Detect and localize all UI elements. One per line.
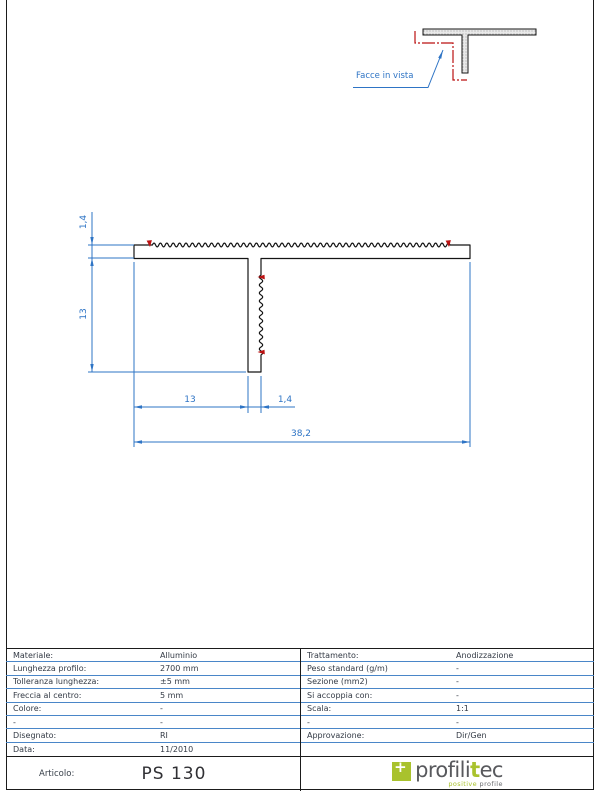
table-row: Trattamento:Anodizzazione <box>301 649 594 662</box>
article-row: Articolo: PS 130 + profilitec positive p… <box>6 756 594 791</box>
table-row: Peso standard (g/m)- <box>301 662 594 675</box>
row-value: RI <box>160 731 300 740</box>
dim-total-width: 38,2 <box>283 429 319 439</box>
logo-wordmark: profilitec <box>415 761 503 780</box>
table-row: -- <box>6 716 300 729</box>
logo-plus-icon: + <box>392 762 411 781</box>
visible-faces-label: Facce in vista <box>356 71 413 81</box>
article-cell: Articolo: PS 130 <box>6 757 300 791</box>
logo-cell: + profilitec positive profile <box>300 757 594 791</box>
spec-table: Materiale:Alluminio Lunghezza profilo:27… <box>6 648 594 790</box>
dim-stem-thickness: 1,4 <box>272 395 298 405</box>
profile-outline <box>134 243 470 372</box>
row-value: - <box>456 718 594 727</box>
row-value: Anodizzazione <box>456 651 594 660</box>
table-row: Si accoppia con:- <box>301 689 594 702</box>
row-label: - <box>6 718 160 727</box>
row-value: 5 mm <box>160 691 300 700</box>
article-number: PS 130 <box>109 764 239 784</box>
row-value: 2700 mm <box>160 664 300 673</box>
row-label: Data: <box>6 745 160 754</box>
detail-profile-section <box>423 29 536 73</box>
table-row: Materiale:Alluminio <box>6 649 300 662</box>
table-row: Scala:1:1 <box>301 703 594 716</box>
row-label: Disegnato: <box>6 731 160 740</box>
row-label: Tolleranza lunghezza: <box>6 677 160 686</box>
table-row: Approvazione:Dir/Gen <box>301 729 594 742</box>
row-label: Lunghezza profilo: <box>6 664 160 673</box>
row-label: Sezione (mm2) <box>301 677 456 686</box>
row-label: Materiale: <box>6 651 160 660</box>
row-value: - <box>160 718 300 727</box>
table-row: -- <box>301 716 594 729</box>
dim-stem-height: 13 <box>74 304 94 324</box>
row-label: Freccia al centro: <box>6 691 160 700</box>
table-row: Colore:- <box>6 703 300 716</box>
table-row: Data:11/2010 <box>6 743 300 756</box>
row-label: Si accoppia con: <box>301 691 456 700</box>
dim-flange-thickness: 1,4 <box>74 212 94 232</box>
dimension-lines <box>88 50 470 447</box>
table-row <box>301 743 594 756</box>
profilitec-logo: + profilitec positive profile <box>392 761 503 788</box>
table-row: Freccia al centro:5 mm <box>6 689 300 702</box>
row-value: 1:1 <box>456 704 594 713</box>
row-value: 11/2010 <box>160 745 300 754</box>
row-label: Colore: <box>6 704 160 713</box>
spec-table-right: Trattamento:Anodizzazione Peso standard … <box>300 649 594 756</box>
table-row: Sezione (mm2)- <box>301 676 594 689</box>
row-label: Approvazione: <box>301 731 456 740</box>
row-value: - <box>456 677 594 686</box>
table-row: Lunghezza profilo:2700 mm <box>6 662 300 675</box>
row-label: Trattamento: <box>301 651 456 660</box>
logo-tagline: positive profile <box>415 780 503 788</box>
row-label: Scala: <box>301 704 456 713</box>
table-row: Tolleranza lunghezza:±5 mm <box>6 676 300 689</box>
row-value: - <box>456 691 594 700</box>
row-label: Peso standard (g/m) <box>301 664 456 673</box>
row-label: - <box>301 718 456 727</box>
row-value: ±5 mm <box>160 677 300 686</box>
table-row: Disegnato:RI <box>6 729 300 742</box>
article-label: Articolo: <box>39 769 109 779</box>
row-value: Alluminio <box>160 651 300 660</box>
spec-table-left: Materiale:Alluminio Lunghezza profilo:27… <box>6 649 300 756</box>
dim-stem-offset: 13 <box>178 395 202 405</box>
row-value: Dir/Gen <box>456 731 594 740</box>
face-marker-arrows <box>147 240 451 354</box>
row-value: - <box>160 704 300 713</box>
row-value: - <box>456 664 594 673</box>
drawing-sheet: 1,4 13 13 1,4 38,2 Facce in vista Materi… <box>0 0 602 792</box>
